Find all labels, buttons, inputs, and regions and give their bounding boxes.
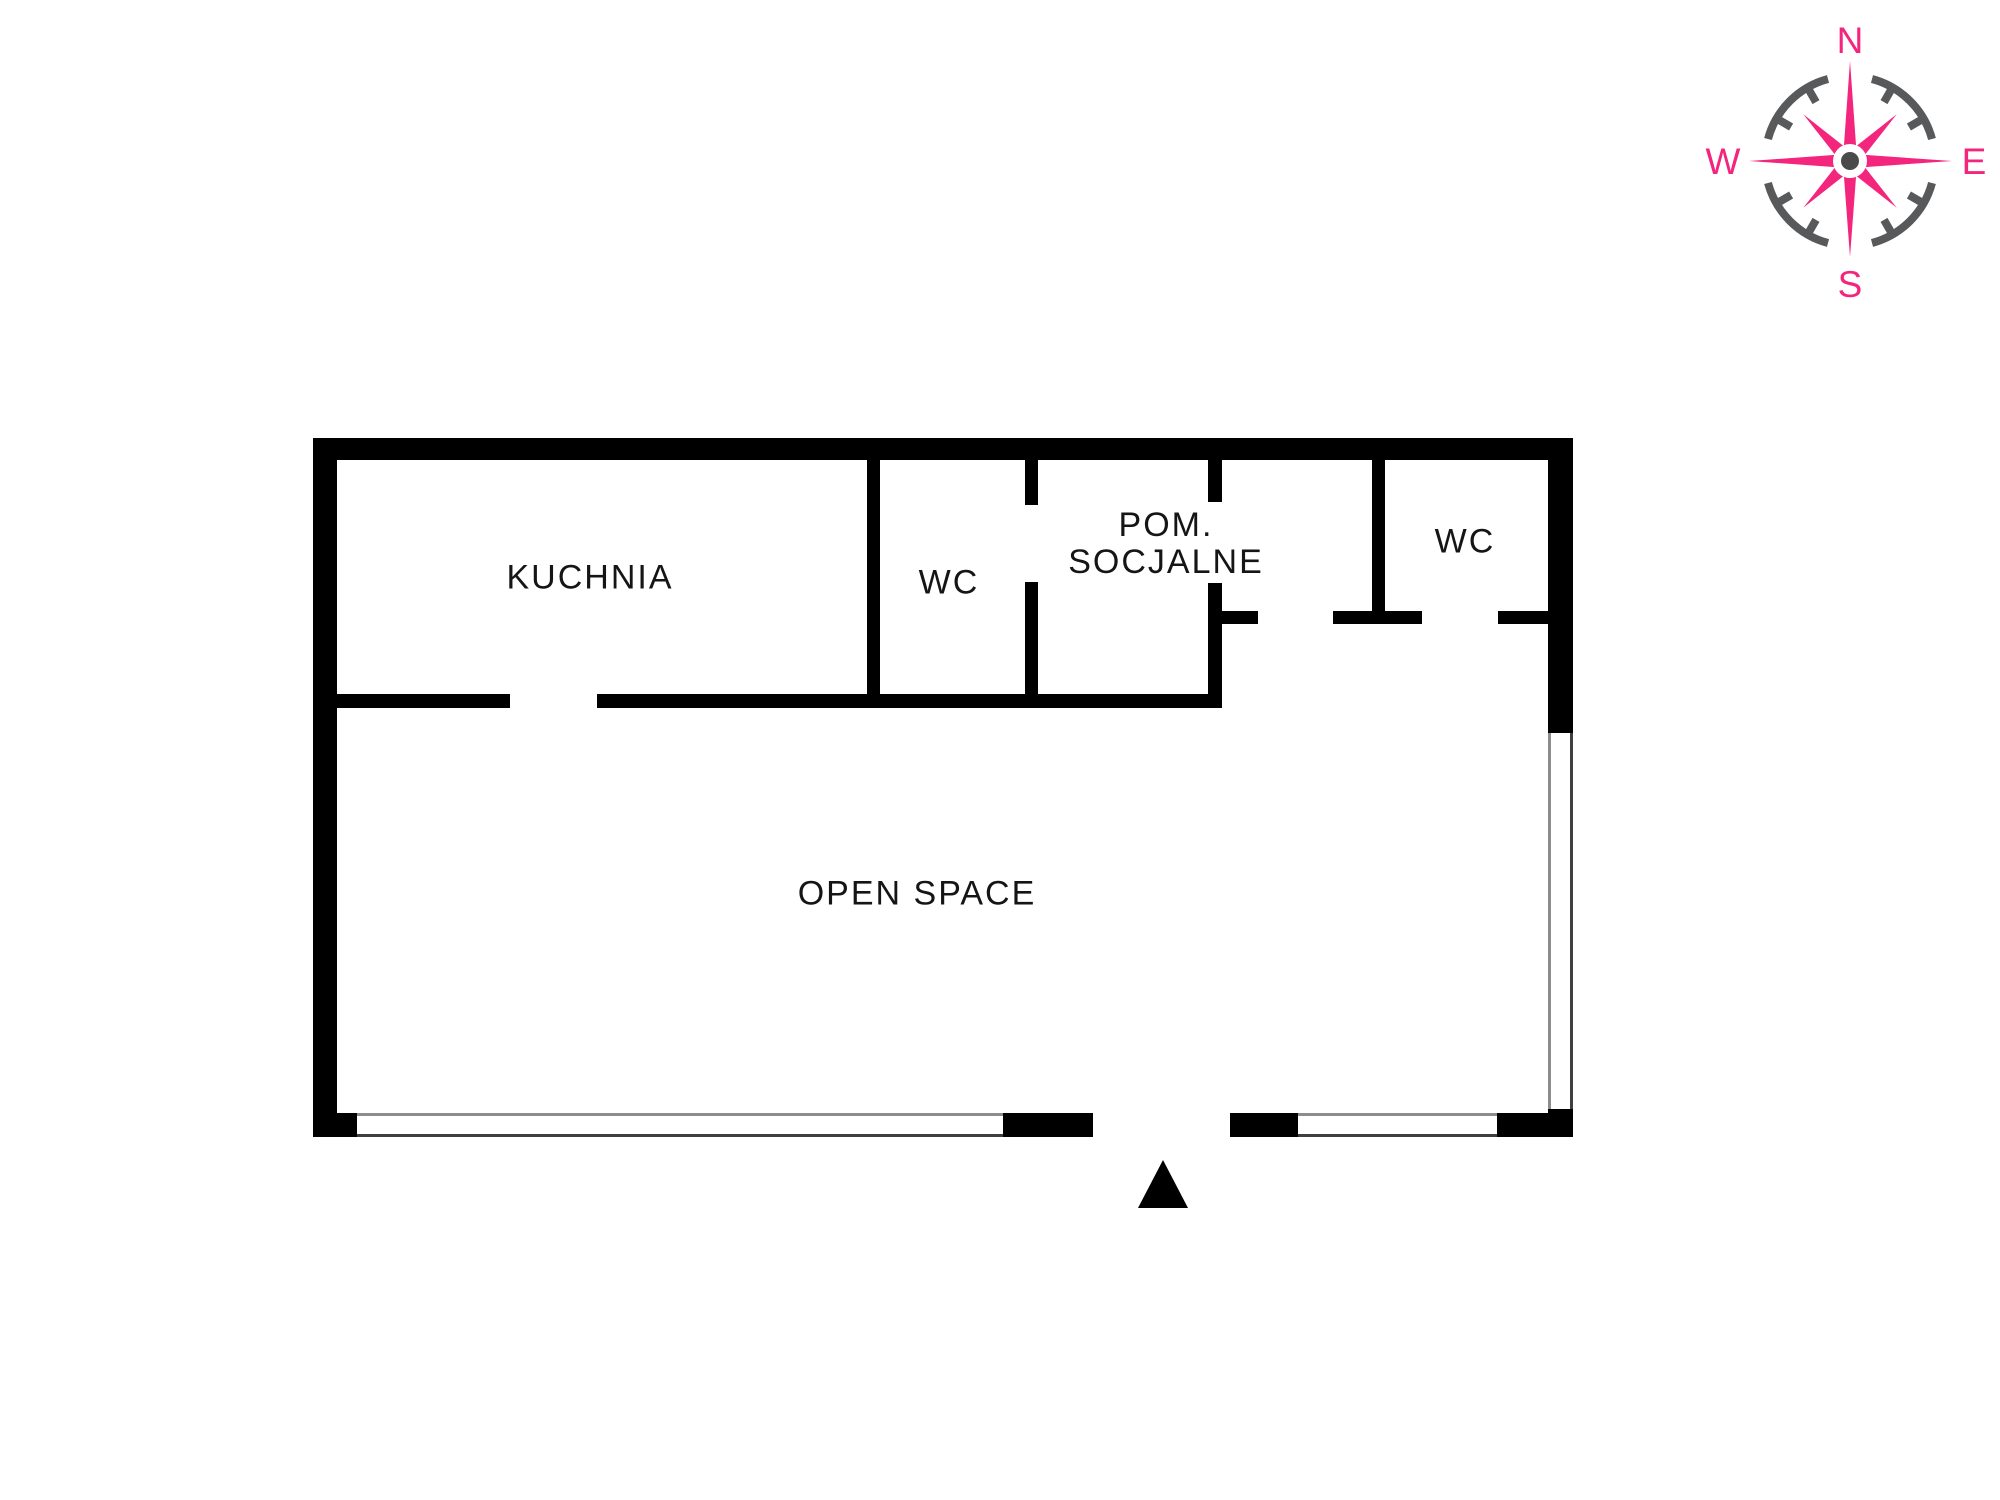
room-label-wc-1: WC <box>919 565 980 602</box>
wall-corridor-bottom-right <box>1498 611 1548 624</box>
wall-right-upper <box>1548 438 1573 733</box>
compass-label-east: E <box>1962 141 1987 182</box>
window-bottom-left <box>357 1113 1003 1137</box>
wall-kuchnia-bottom-left <box>337 694 510 708</box>
wall-bottom-corner-right <box>1497 1113 1573 1137</box>
wall-pom-stub <box>1222 611 1258 624</box>
wall-left <box>313 438 337 1137</box>
compass-label-west: W <box>1706 141 1741 182</box>
wall-pom-right-lower <box>1208 583 1222 708</box>
wall-wc2-left <box>1372 460 1385 611</box>
room-label-open-space: OPEN SPACE <box>798 876 1037 913</box>
wall-divider-wc-pom-lower <box>1025 582 1038 694</box>
compass-rose-icon: N W E S <box>1700 0 2000 330</box>
wall-bottom-mid <box>1003 1113 1093 1137</box>
wall-divider-kuchnia-wc <box>867 460 880 694</box>
room-label-pom-line2: SOCJALNE <box>1068 544 1264 581</box>
window-bottom-right <box>1298 1113 1497 1137</box>
room-label-pom-line1: POM. <box>1068 507 1264 544</box>
wall-top <box>313 438 1573 460</box>
wall-bottom-corner-left <box>313 1113 357 1137</box>
room-label-kuchnia: KUCHNIA <box>506 560 673 597</box>
wall-rooms-bottom <box>597 694 1222 708</box>
wall-divider-wc-pom-upper <box>1025 460 1038 505</box>
room-label-wc-2: WC <box>1435 524 1496 561</box>
entrance-arrow-icon <box>1138 1160 1188 1208</box>
floor-plan-page: KUCHNIA WC POM. SOCJALNE WC OPEN SPACE N… <box>0 0 2000 1500</box>
wall-bottom-right-of-entrance <box>1230 1113 1298 1137</box>
compass-hub-dot <box>1841 152 1859 170</box>
wall-pom-right-upper <box>1208 460 1222 502</box>
window-right-wall <box>1548 733 1573 1109</box>
compass-label-north: N <box>1837 20 1864 61</box>
room-label-pom-socjalne: POM. SOCJALNE <box>1068 507 1264 581</box>
compass-label-south: S <box>1838 264 1863 305</box>
wall-corridor-bottom-left <box>1333 611 1422 624</box>
